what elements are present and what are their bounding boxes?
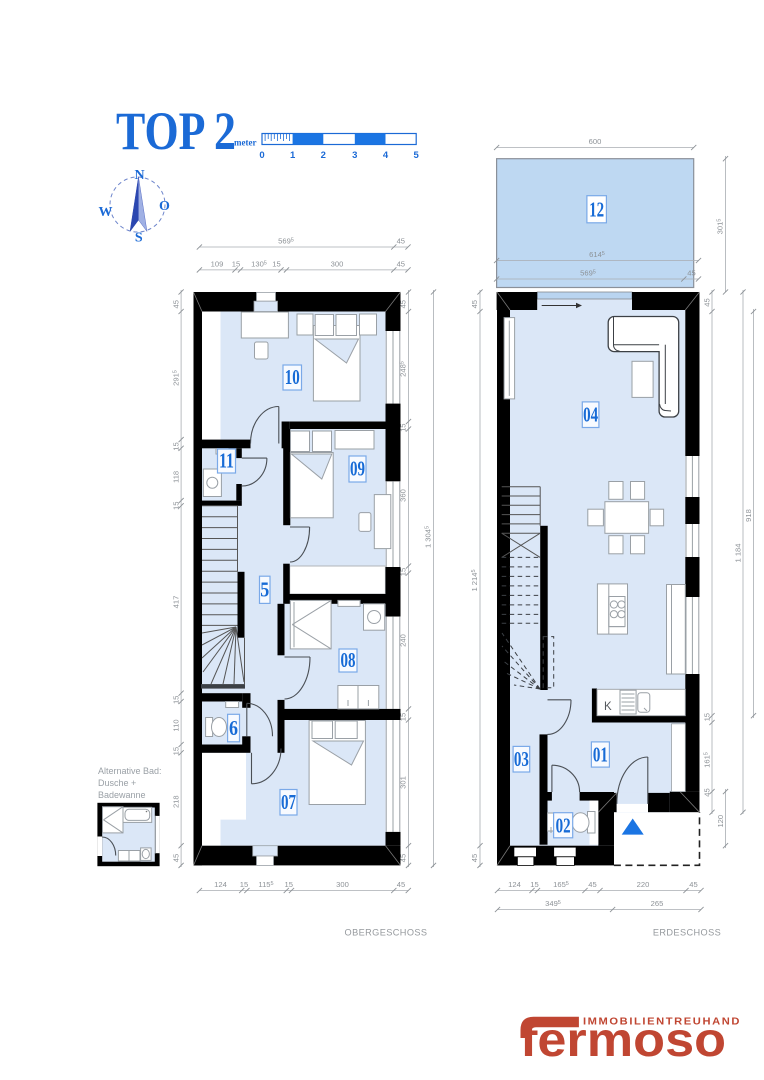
svg-text:45: 45 xyxy=(703,788,712,796)
svg-text:12: 12 xyxy=(589,198,604,222)
svg-text:6: 6 xyxy=(229,716,238,740)
svg-text:5: 5 xyxy=(260,578,269,602)
svg-text:15: 15 xyxy=(171,442,180,450)
svg-text:124: 124 xyxy=(214,880,227,889)
svg-text:15: 15 xyxy=(284,880,292,889)
svg-text:918: 918 xyxy=(744,509,753,522)
svg-text:45: 45 xyxy=(399,300,408,308)
svg-text:5: 5 xyxy=(414,150,420,161)
svg-text:265: 265 xyxy=(651,899,664,908)
svg-text:45: 45 xyxy=(399,854,408,862)
svg-text:4: 4 xyxy=(383,150,389,161)
svg-text:301: 301 xyxy=(399,776,408,789)
svg-text:15: 15 xyxy=(399,568,408,576)
svg-text:45: 45 xyxy=(470,300,479,308)
svg-text:Badewanne: Badewanne xyxy=(98,790,146,800)
svg-text:Dusche +: Dusche + xyxy=(98,778,136,788)
svg-text:45: 45 xyxy=(470,854,479,862)
svg-text:45: 45 xyxy=(171,300,180,308)
svg-text:1: 1 xyxy=(290,150,296,161)
svg-text:45: 45 xyxy=(689,880,697,889)
svg-text:220: 220 xyxy=(637,880,650,889)
svg-text:10: 10 xyxy=(285,365,300,389)
svg-text:15: 15 xyxy=(171,747,180,755)
svg-text:15: 15 xyxy=(399,423,408,431)
svg-text:09: 09 xyxy=(350,457,365,481)
svg-text:1 2145: 1 2145 xyxy=(470,569,479,591)
svg-text:OBERGESCHOSS: OBERGESCHOSS xyxy=(345,928,428,938)
svg-text:118: 118 xyxy=(171,471,180,483)
svg-text:O: O xyxy=(159,199,170,214)
svg-text:04: 04 xyxy=(583,403,598,427)
svg-text:1 184: 1 184 xyxy=(733,543,742,562)
svg-text:meter: meter xyxy=(234,138,256,148)
svg-text:600: 600 xyxy=(589,137,602,146)
svg-text:45: 45 xyxy=(171,854,180,862)
svg-text:07: 07 xyxy=(281,790,296,814)
svg-text:300: 300 xyxy=(336,880,349,889)
svg-text:417: 417 xyxy=(171,596,180,609)
svg-text:03: 03 xyxy=(514,747,529,771)
svg-text:15: 15 xyxy=(703,713,712,721)
svg-text:15: 15 xyxy=(240,880,248,889)
svg-text:15: 15 xyxy=(530,880,538,889)
svg-text:Alternative Bad:: Alternative Bad: xyxy=(98,766,162,776)
svg-text:11: 11 xyxy=(219,449,234,473)
svg-text:124: 124 xyxy=(508,880,521,889)
svg-text:15: 15 xyxy=(232,259,240,268)
svg-text:45: 45 xyxy=(703,298,712,306)
svg-text:45: 45 xyxy=(588,880,596,889)
svg-text:300: 300 xyxy=(331,259,344,268)
svg-text:15: 15 xyxy=(399,713,408,721)
svg-text:0: 0 xyxy=(259,150,264,161)
svg-text:45: 45 xyxy=(397,259,405,268)
svg-text:110: 110 xyxy=(171,719,180,731)
svg-text:W: W xyxy=(99,205,113,220)
svg-text:15: 15 xyxy=(272,259,280,268)
svg-text:ERDESCHOSS: ERDESCHOSS xyxy=(653,928,721,938)
svg-text:3: 3 xyxy=(352,150,357,161)
svg-text:109: 109 xyxy=(211,259,224,268)
svg-text:S: S xyxy=(135,231,143,246)
svg-text:TOP 2: TOP 2 xyxy=(116,101,236,161)
svg-text:15: 15 xyxy=(171,696,180,704)
svg-text:08: 08 xyxy=(341,648,356,672)
svg-text:K: K xyxy=(604,701,612,713)
svg-text:360: 360 xyxy=(399,489,408,502)
svg-text:2: 2 xyxy=(321,150,326,161)
svg-text:218: 218 xyxy=(171,795,180,808)
svg-text:02: 02 xyxy=(556,813,571,837)
svg-text:120: 120 xyxy=(716,815,725,828)
svg-text:1 3045: 1 3045 xyxy=(424,526,433,548)
svg-text:45: 45 xyxy=(397,237,405,246)
svg-text:45: 45 xyxy=(687,268,695,277)
svg-text:15: 15 xyxy=(171,501,180,509)
svg-text:N: N xyxy=(134,168,144,183)
svg-text:45: 45 xyxy=(397,880,405,889)
svg-text:IMMOBILIENTREUHAND: IMMOBILIENTREUHAND xyxy=(583,1016,741,1028)
svg-text:01: 01 xyxy=(593,742,608,766)
svg-text:240: 240 xyxy=(399,634,408,647)
